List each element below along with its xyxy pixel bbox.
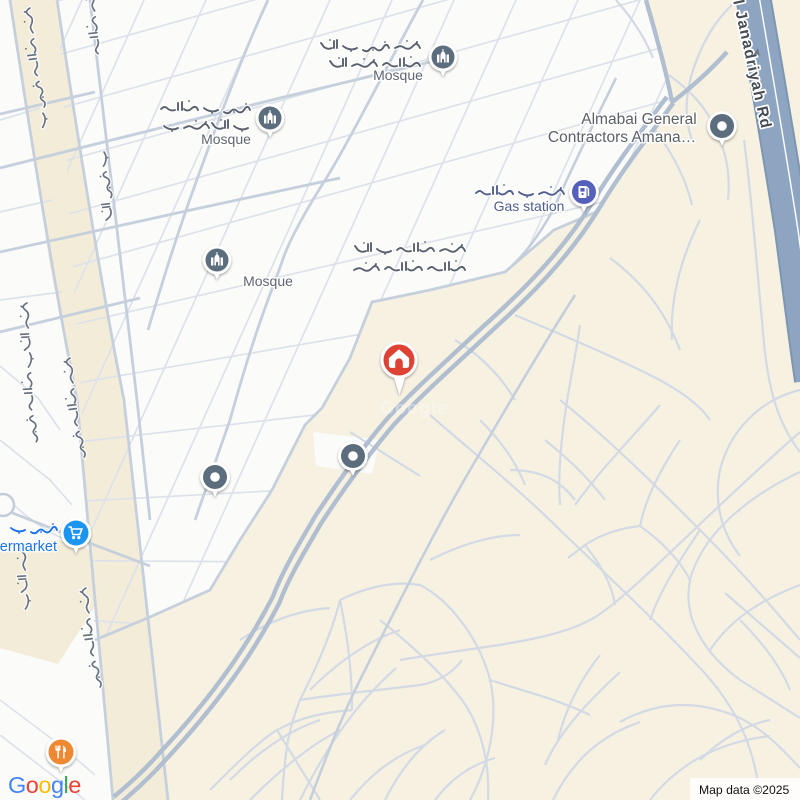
svg-text:Map data ©2025: Map data ©2025 [699, 783, 790, 797]
svg-text:Almabai General: Almabai General [581, 111, 696, 128]
svg-text:Mosque: Mosque [201, 131, 251, 147]
svg-text:Contractors Amana…: Contractors Amana… [548, 129, 696, 146]
svg-text:Google: Google [380, 398, 448, 418]
svg-text:Gas station: Gas station [494, 198, 565, 214]
svg-text:Mosque: Mosque [243, 273, 293, 289]
svg-text:Google: Google [8, 772, 81, 798]
svg-text:bermarket: bermarket [0, 539, 57, 555]
svg-text:Mosque: Mosque [373, 67, 423, 83]
